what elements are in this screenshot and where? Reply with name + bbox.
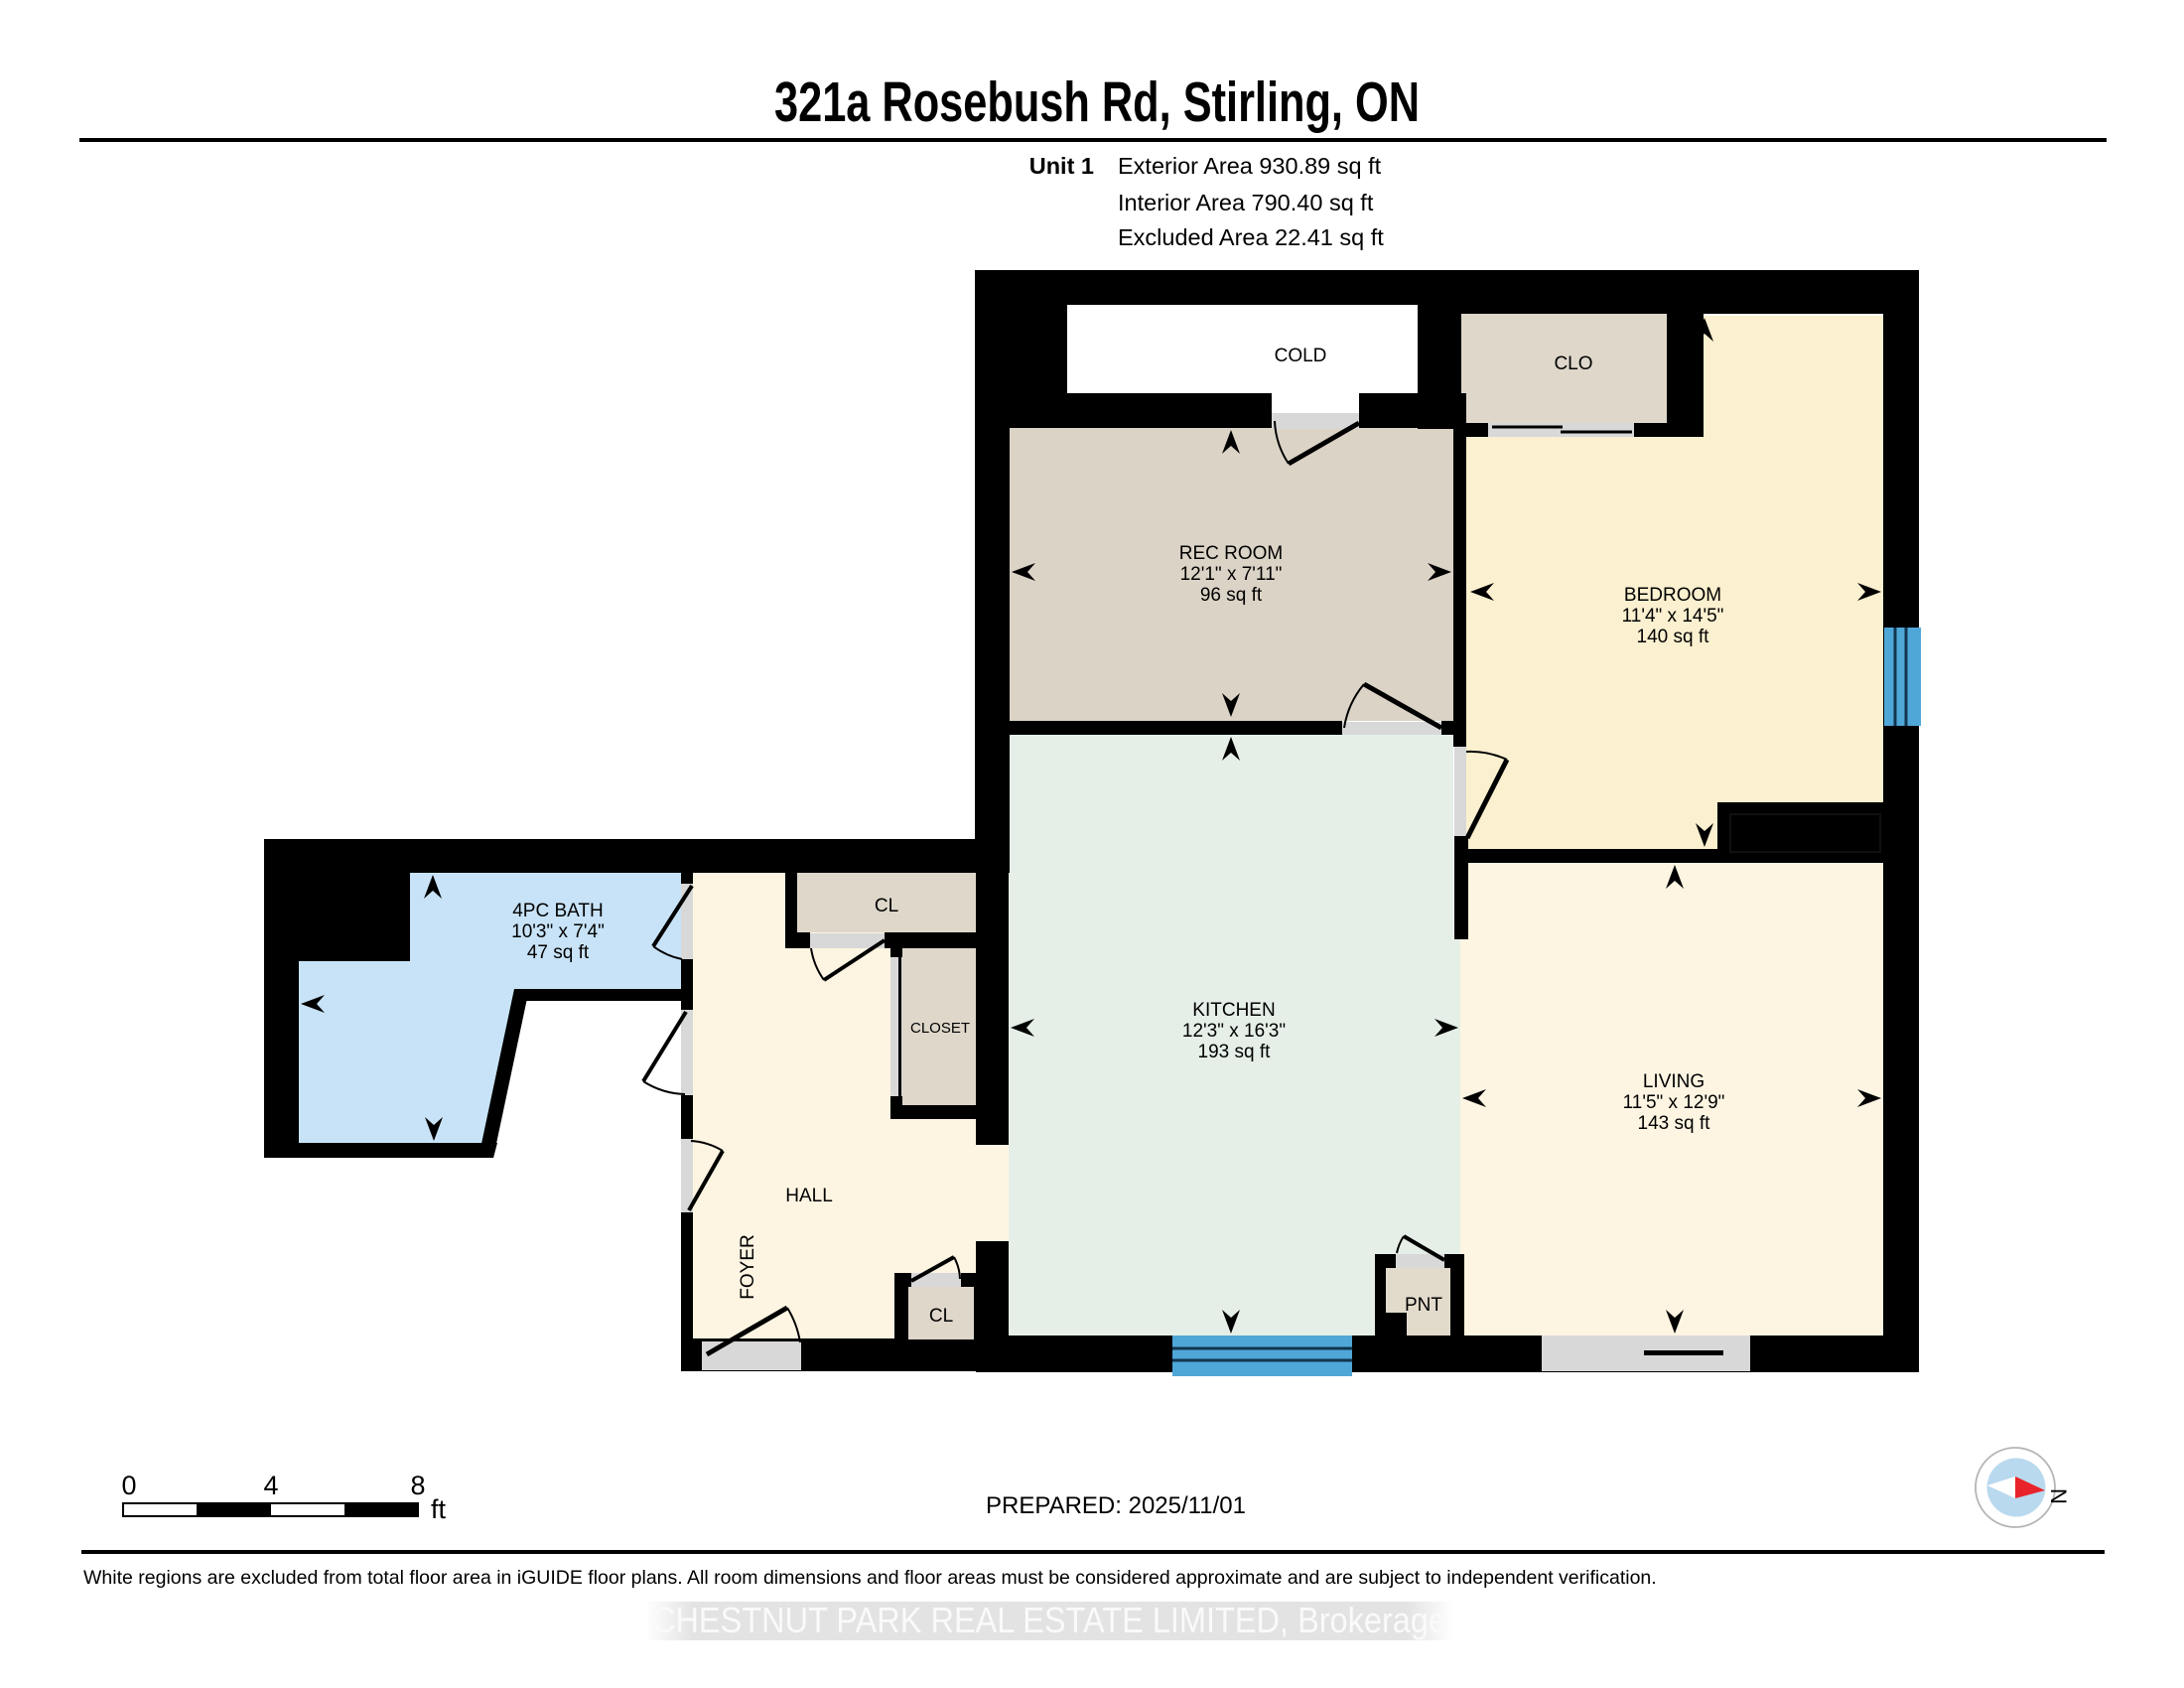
svg-text:11'5" x 12'9": 11'5" x 12'9": [1623, 1092, 1725, 1113]
svg-text:143 sq ft: 143 sq ft: [1638, 1113, 1711, 1134]
svg-text:CL: CL: [875, 896, 898, 916]
svg-text:12'3" x 16'3": 12'3" x 16'3": [1182, 1021, 1286, 1042]
svg-text:CHESTNUT PARK REAL ESTATE LIMI: CHESTNUT PARK REAL ESTATE LIMITED, Broke…: [652, 1600, 1446, 1640]
svg-text:PREPARED: 2025/11/01: PREPARED: 2025/11/01: [986, 1492, 1246, 1519]
svg-text:HALL: HALL: [785, 1186, 833, 1206]
svg-text:47 sq ft: 47 sq ft: [527, 942, 590, 963]
svg-text:CLO: CLO: [1554, 353, 1592, 374]
svg-text:COLD: COLD: [1275, 346, 1327, 366]
svg-text:193 sq ft: 193 sq ft: [1198, 1042, 1272, 1062]
svg-text:8: 8: [410, 1471, 425, 1500]
svg-text:ft: ft: [431, 1494, 447, 1524]
svg-text:Interior Area 790.40 sq ft: Interior Area 790.40 sq ft: [1118, 190, 1374, 215]
svg-text:FOYER: FOYER: [738, 1234, 758, 1299]
svg-text:PNT: PNT: [1405, 1295, 1442, 1316]
svg-text:Unit 1: Unit 1: [1029, 153, 1094, 179]
svg-text:140 sq ft: 140 sq ft: [1637, 627, 1710, 647]
svg-text:BEDROOM: BEDROOM: [1624, 585, 1721, 606]
svg-text:LIVING: LIVING: [1643, 1071, 1705, 1092]
svg-text:Excluded Area 22.41 sq ft: Excluded Area 22.41 sq ft: [1118, 224, 1384, 250]
svg-text:N: N: [2046, 1488, 2071, 1504]
svg-text:0: 0: [121, 1471, 136, 1500]
svg-text:KITCHEN: KITCHEN: [1192, 1000, 1275, 1021]
svg-text:CL: CL: [929, 1306, 953, 1327]
svg-text:321a Rosebush Rd, Stirling, ON: 321a Rosebush Rd, Stirling, ON: [774, 70, 1420, 134]
svg-text:CLOSET: CLOSET: [910, 1020, 970, 1037]
svg-text:Exterior Area 930.89 sq ft: Exterior Area 930.89 sq ft: [1118, 153, 1382, 179]
svg-text:4PC BATH: 4PC BATH: [512, 901, 604, 921]
svg-text:10'3" x 7'4": 10'3" x 7'4": [511, 921, 605, 942]
svg-text:REC ROOM: REC ROOM: [1179, 543, 1284, 564]
svg-text:12'1" x 7'11": 12'1" x 7'11": [1180, 564, 1283, 585]
svg-text:White regions are excluded fro: White regions are excluded from total fl…: [83, 1567, 1657, 1589]
svg-text:4: 4: [263, 1471, 278, 1500]
svg-text:11'4" x 14'5": 11'4" x 14'5": [1622, 606, 1724, 627]
svg-text:96 sq ft: 96 sq ft: [1200, 585, 1263, 606]
